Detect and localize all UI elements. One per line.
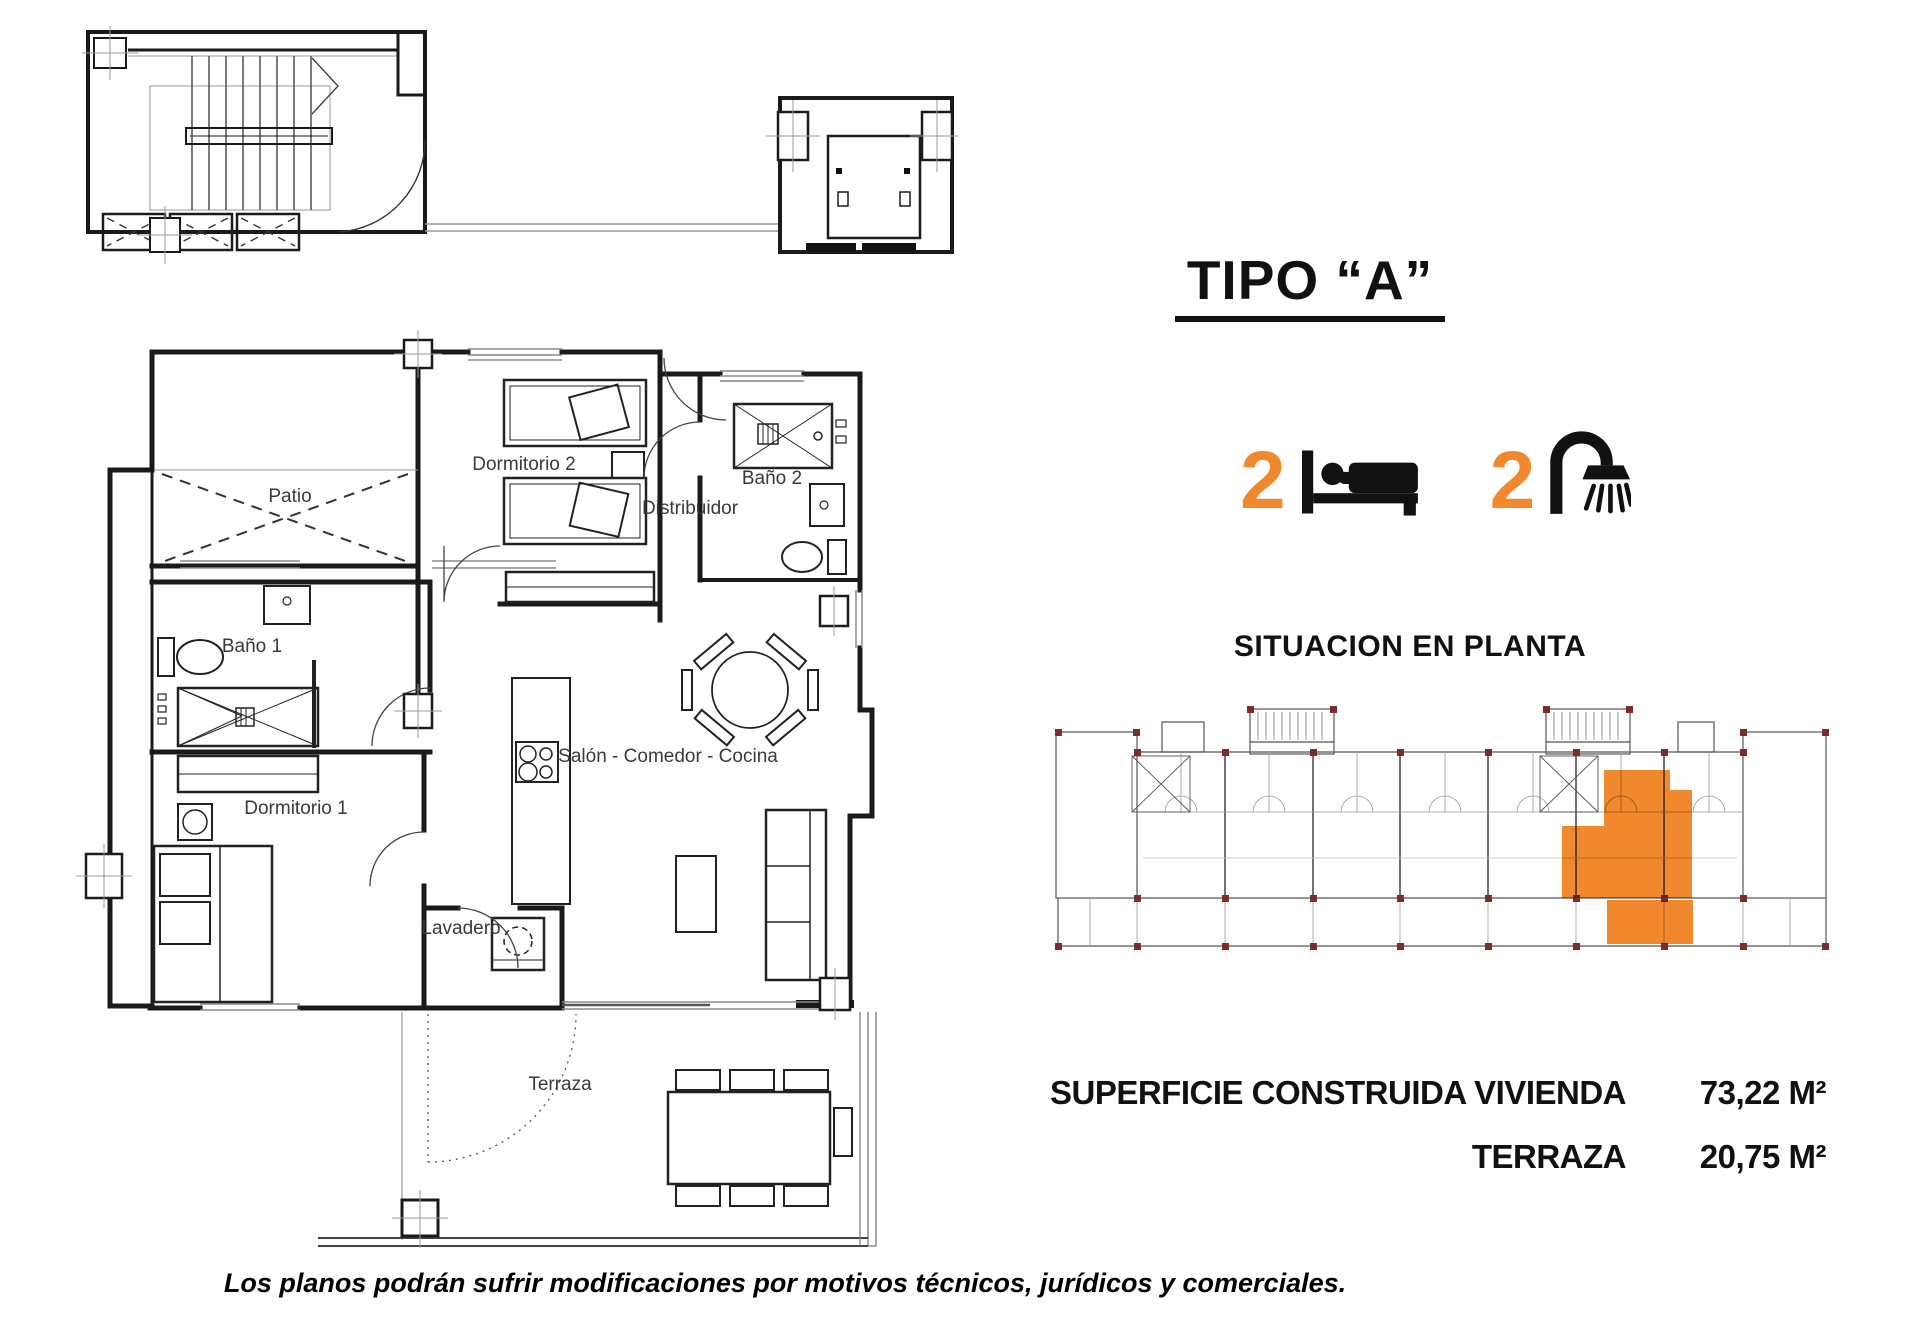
furniture <box>154 380 852 1206</box>
room-label-distribuidor: Distribuidor <box>642 498 739 519</box>
area-row-terraza: TERRAZA 20,75 M² <box>1040 1138 1826 1176</box>
area-value: 73,22 M² <box>1626 1074 1826 1112</box>
room-label-dormitorio2: Dormitorio 2 <box>472 454 575 475</box>
room-label-lavadero: Lavadero <box>421 918 500 939</box>
room-label-terraza: Terraza <box>528 1074 592 1095</box>
room-label-bano2: Baño 2 <box>742 468 802 489</box>
room-label-dormitorio1: Dormitorio 1 <box>244 798 347 819</box>
area-row-vivienda: SUPERFICIE CONSTRUIDA VIVIENDA 73,22 M² <box>1040 1074 1826 1112</box>
room-label-bano1: Baño 1 <box>222 636 282 657</box>
staircase-detail <box>82 26 425 264</box>
elevator-detail <box>766 98 958 252</box>
areas-table: SUPERFICIE CONSTRUIDA VIVIENDA 73,22 M² … <box>1040 1074 1826 1176</box>
floor-plan-sheet: Patio Dormitorio 2 Baño 2 Distribuidor B… <box>0 0 1920 1329</box>
room-label-salon: Salón - Comedor - Cocina <box>558 746 778 767</box>
area-value: 20,75 M² <box>1626 1138 1826 1176</box>
apartment-floor-plan: Patio Dormitorio 2 Baño 2 Distribuidor B… <box>0 0 960 1280</box>
corridor-link <box>425 224 782 231</box>
disclaimer-text: Los planos podrán sufrir modificaciones … <box>224 1268 1346 1298</box>
site-key-plan <box>1040 690 1860 980</box>
bed-icon <box>1302 446 1424 518</box>
site-plan-columns <box>1055 706 1829 950</box>
shower-icon <box>1547 424 1631 518</box>
area-label: TERRAZA <box>1040 1138 1626 1176</box>
area-label: SUPERFICIE CONSTRUIDA VIVIENDA <box>1040 1074 1626 1112</box>
footer: Los planos podrán sufrir modificaciones … <box>0 1268 1570 1299</box>
room-label-patio: Patio <box>268 486 311 507</box>
patio-void <box>155 470 418 562</box>
situacion-block: SITUACION EN PLANTA <box>1140 630 1680 664</box>
apartment-walls <box>110 352 872 1008</box>
door-swings <box>370 358 726 968</box>
situacion-heading: SITUACION EN PLANTA <box>1234 630 1586 663</box>
page-title: TIPO “A” <box>1175 248 1445 322</box>
terrace-boundary <box>318 1012 868 1248</box>
bedroom-count: 2 <box>1240 443 1286 518</box>
unit-stats: 2 2 <box>1240 422 1631 518</box>
bathroom-count: 2 <box>1490 443 1536 518</box>
type-title-block: TIPO “A” <box>1040 248 1580 322</box>
